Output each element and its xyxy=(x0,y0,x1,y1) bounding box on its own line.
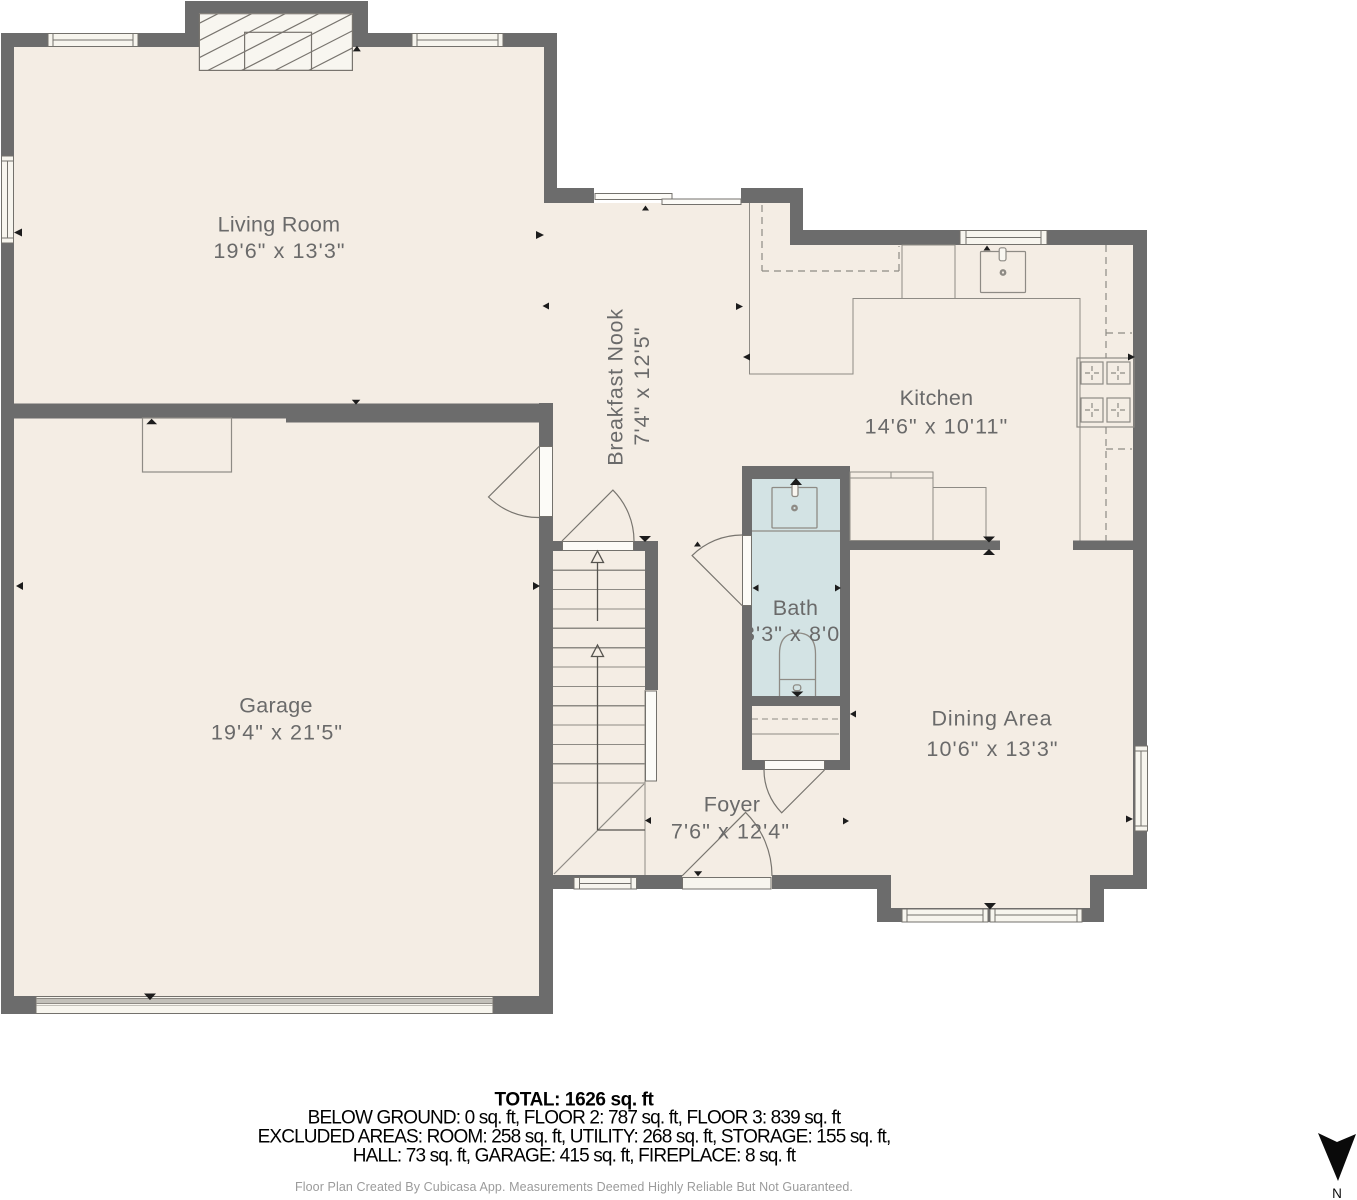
svg-text:Living Room: Living Room xyxy=(218,213,341,237)
svg-text:7'4" x 12'5": 7'4" x 12'5" xyxy=(630,326,654,445)
svg-text:Foyer: Foyer xyxy=(704,793,760,817)
svg-text:10'6" x 13'3": 10'6" x 13'3" xyxy=(926,737,1058,761)
svg-text:HALL: 73 sq. ft, GARAGE: 415 s: HALL: 73 sq. ft, GARAGE: 415 sq. ft, FIR… xyxy=(353,1145,797,1166)
svg-text:3'3" x 8'0": 3'3" x 8'0" xyxy=(743,622,849,646)
svg-text:Kitchen: Kitchen xyxy=(900,386,974,410)
svg-text:BELOW GROUND: 0 sq. ft, FLOOR: BELOW GROUND: 0 sq. ft, FLOOR 2: 787 sq.… xyxy=(308,1108,842,1129)
svg-text:14'6" x 10'11": 14'6" x 10'11" xyxy=(865,415,1009,439)
svg-text:19'4" x 21'5": 19'4" x 21'5" xyxy=(211,721,343,745)
svg-text:Bath: Bath xyxy=(773,596,818,620)
svg-text:19'6" x 13'3": 19'6" x 13'3" xyxy=(213,239,345,263)
svg-text:7'6" x 12'4": 7'6" x 12'4" xyxy=(671,820,790,844)
svg-text:Dining Area: Dining Area xyxy=(931,707,1052,731)
svg-text:Floor Plan Created By Cubicasa: Floor Plan Created By Cubicasa App. Meas… xyxy=(295,1180,853,1194)
svg-text:Garage: Garage xyxy=(239,694,313,718)
svg-text:Breakfast Nook: Breakfast Nook xyxy=(604,308,628,465)
svg-text:N: N xyxy=(1332,1186,1342,1200)
